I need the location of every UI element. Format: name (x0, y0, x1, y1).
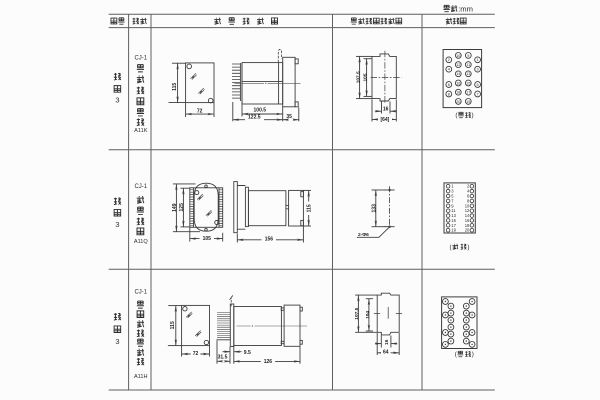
svg-text:[64]: [64] (380, 117, 389, 123)
svg-text:13: 13 (466, 72, 470, 76)
svg-text:A11Q: A11Q (134, 239, 149, 245)
svg-text:CJ-1: CJ-1 (134, 55, 147, 61)
svg-text:A11K: A11K (134, 128, 148, 134)
svg-text:126: 126 (264, 359, 273, 365)
svg-text:64: 64 (383, 349, 389, 355)
svg-text:): ) (472, 112, 474, 119)
svg-text:2: 2 (448, 58, 450, 62)
svg-text:4: 4 (448, 68, 450, 72)
svg-text:16: 16 (456, 81, 460, 85)
svg-text:149: 149 (172, 203, 178, 212)
svg-text:115: 115 (170, 321, 176, 329)
svg-text:115: 115 (172, 83, 178, 91)
svg-text:): ) (472, 351, 474, 358)
svg-text:19: 19 (451, 228, 456, 233)
svg-text:17: 17 (466, 91, 470, 95)
svg-text:105: 105 (203, 236, 212, 242)
svg-text:115: 115 (307, 204, 313, 212)
svg-text:12: 12 (456, 63, 460, 67)
svg-text:14: 14 (456, 72, 460, 76)
svg-text:6: 6 (448, 83, 450, 87)
svg-text:A11H: A11H (134, 374, 148, 380)
svg-text:3: 3 (477, 68, 479, 72)
svg-text:100.5: 100.5 (254, 108, 267, 114)
svg-text:1: 1 (477, 58, 479, 62)
svg-text:7: 7 (477, 92, 479, 96)
svg-text:3: 3 (115, 220, 119, 229)
svg-text:20: 20 (465, 228, 470, 233)
svg-text:2-Φ6: 2-Φ6 (358, 232, 369, 238)
svg-text:35: 35 (286, 114, 292, 120)
svg-text:72: 72 (193, 351, 199, 357)
svg-text:16: 16 (384, 339, 390, 345)
svg-text:CJ-1: CJ-1 (134, 290, 147, 296)
svg-text:20: 20 (456, 100, 460, 104)
svg-text:): ) (467, 244, 469, 251)
svg-text:122.5: 122.5 (248, 114, 261, 120)
svg-text:31.5: 31.5 (218, 355, 228, 361)
svg-text:104: 104 (365, 311, 371, 319)
svg-text:107.5: 107.5 (354, 307, 360, 319)
svg-text:18: 18 (456, 91, 460, 95)
svg-text:156: 156 (265, 237, 274, 243)
svg-text:11: 11 (466, 63, 470, 67)
svg-text:19: 19 (466, 100, 470, 104)
svg-text:8: 8 (448, 92, 450, 96)
svg-text:9.5: 9.5 (244, 350, 251, 356)
svg-text:133: 133 (372, 204, 378, 213)
svg-text::mm: :mm (458, 5, 473, 14)
svg-text:10: 10 (456, 54, 460, 58)
svg-text:107.5: 107.5 (355, 71, 361, 83)
svg-text:125: 125 (179, 203, 185, 212)
svg-text:72: 72 (197, 109, 203, 115)
svg-text:5: 5 (477, 83, 479, 87)
svg-text:CJ-1: CJ-1 (134, 184, 147, 190)
svg-text:3: 3 (115, 96, 119, 105)
svg-text:16: 16 (383, 106, 389, 112)
svg-text:3: 3 (115, 337, 119, 346)
svg-text:9: 9 (467, 54, 469, 58)
svg-text:105: 105 (363, 73, 369, 81)
svg-text:15: 15 (466, 81, 470, 85)
